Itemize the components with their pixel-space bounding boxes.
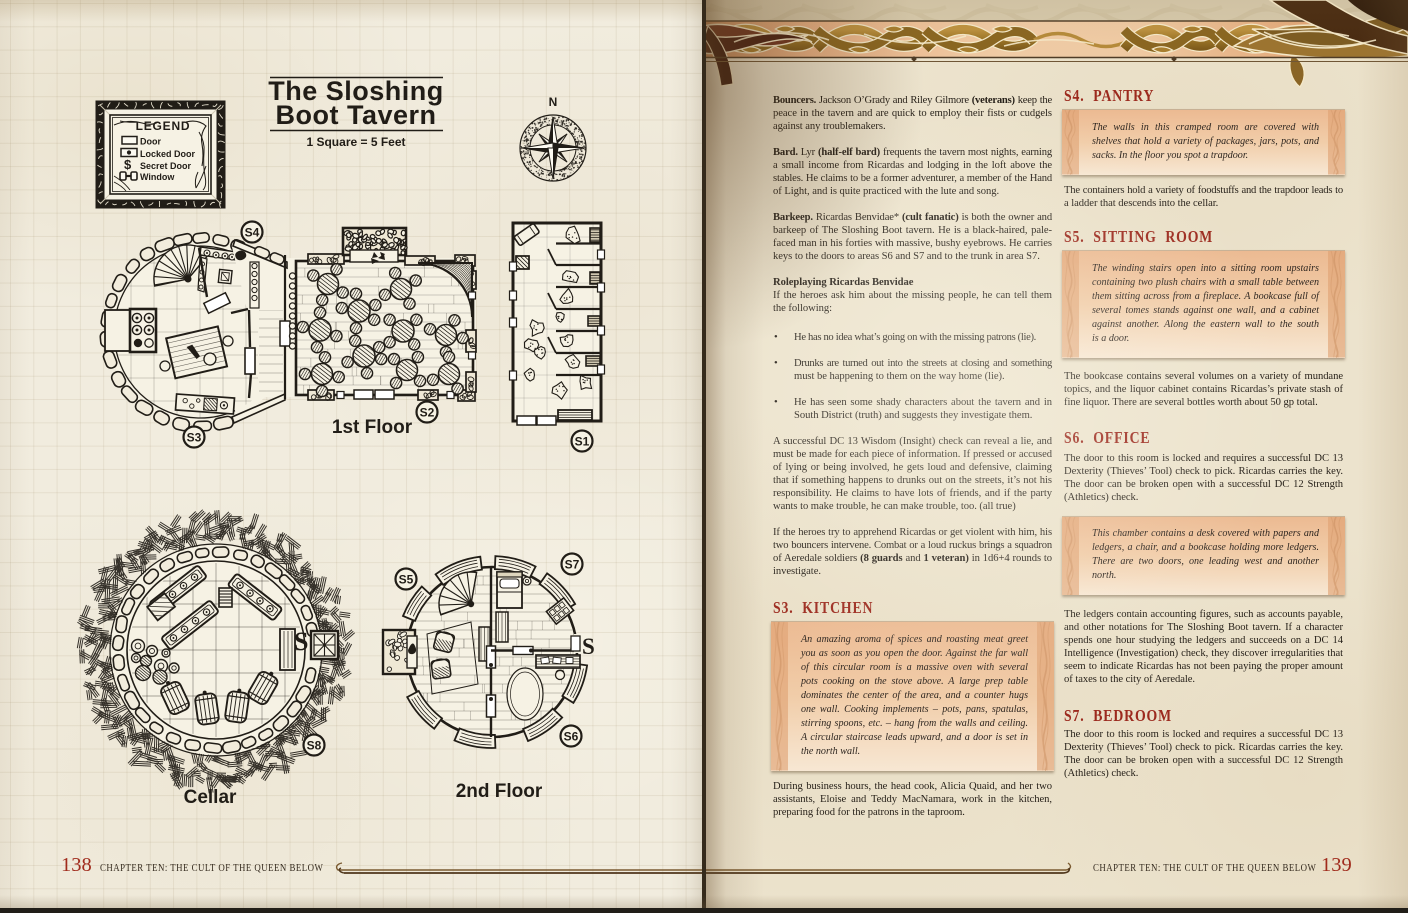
svg-text:Secret Door: Secret Door (140, 161, 192, 171)
svg-text:Cellar: Cellar (184, 787, 237, 808)
svg-text:2nd Floor: 2nd Floor (456, 781, 543, 802)
svg-text:S: S (294, 627, 308, 656)
svg-text:S2: S2 (420, 406, 435, 420)
svg-text:S7: S7 (565, 558, 580, 572)
svg-text:$: $ (124, 157, 132, 172)
svg-text:S6: S6 (564, 730, 579, 744)
svg-text:Boot Tavern: Boot Tavern (275, 100, 436, 130)
svg-text:LEGEND: LEGEND (136, 119, 191, 133)
svg-text:N: N (549, 95, 558, 109)
svg-text:Locked Door: Locked Door (140, 149, 196, 159)
svg-text:S4: S4 (245, 226, 260, 240)
svg-text:S8: S8 (307, 739, 322, 753)
svg-text:S5: S5 (399, 573, 414, 587)
svg-text:Door: Door (140, 137, 161, 147)
svg-text:1st Floor: 1st Floor (332, 417, 413, 438)
svg-text:Window: Window (140, 172, 175, 182)
svg-text:S: S (582, 634, 595, 659)
svg-text:S3: S3 (187, 431, 202, 445)
svg-text:S1: S1 (575, 435, 590, 449)
svg-text:1 Square = 5 Feet: 1 Square = 5 Feet (306, 135, 405, 149)
